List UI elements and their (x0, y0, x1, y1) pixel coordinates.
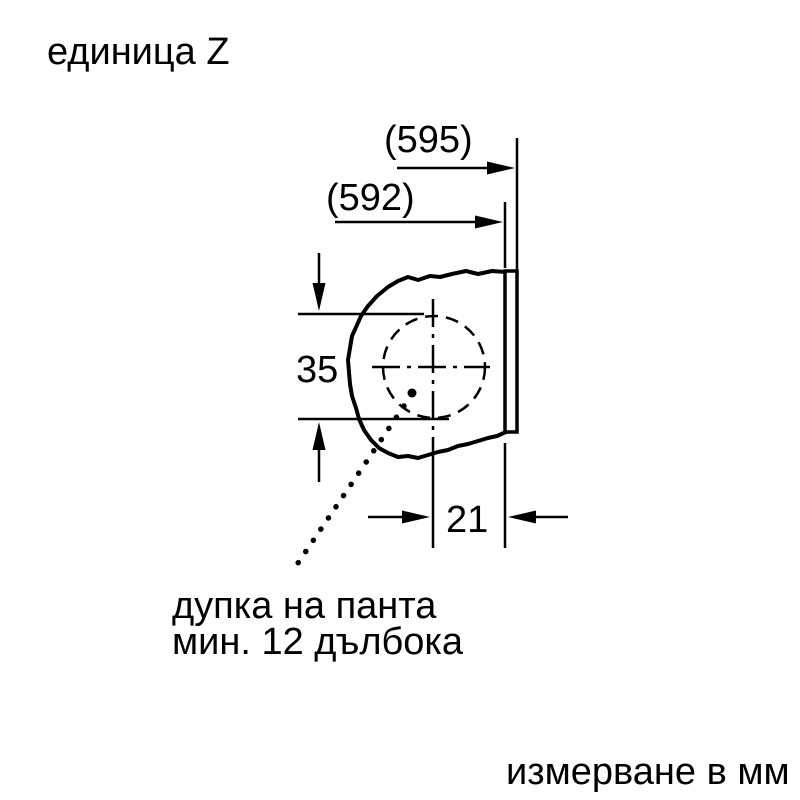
page-title: единица Z (47, 33, 230, 71)
dim-35-up-arrow (313, 422, 326, 482)
dim-21-value: 21 (446, 501, 488, 539)
dim-35-down-arrow (313, 253, 326, 311)
hinge-hole-label: дупка на панта мин. 12 дълбока (172, 588, 463, 660)
dim-35-value: 35 (296, 351, 338, 389)
door-edge-panel (505, 271, 517, 432)
dim-592-value: (592) (326, 179, 415, 217)
leader-dotted-line (296, 406, 404, 566)
hinge-hole-label-line1: дупка на панта (172, 588, 463, 624)
door-section-outline (348, 271, 506, 458)
measurement-unit-note: измерване в мм (506, 753, 790, 791)
hinge-hole-label-line2: мин. 12 дълбока (172, 624, 463, 660)
diagram-page: единица Z (595) (592) 35 21 дупка на пан… (0, 0, 800, 800)
dim-21-left-arrow (368, 511, 430, 524)
dim-595-arrow (397, 162, 515, 175)
dim-21-right-arrow (508, 511, 568, 524)
leader-start-dot (408, 389, 417, 398)
dim-595-value: (595) (384, 121, 473, 159)
